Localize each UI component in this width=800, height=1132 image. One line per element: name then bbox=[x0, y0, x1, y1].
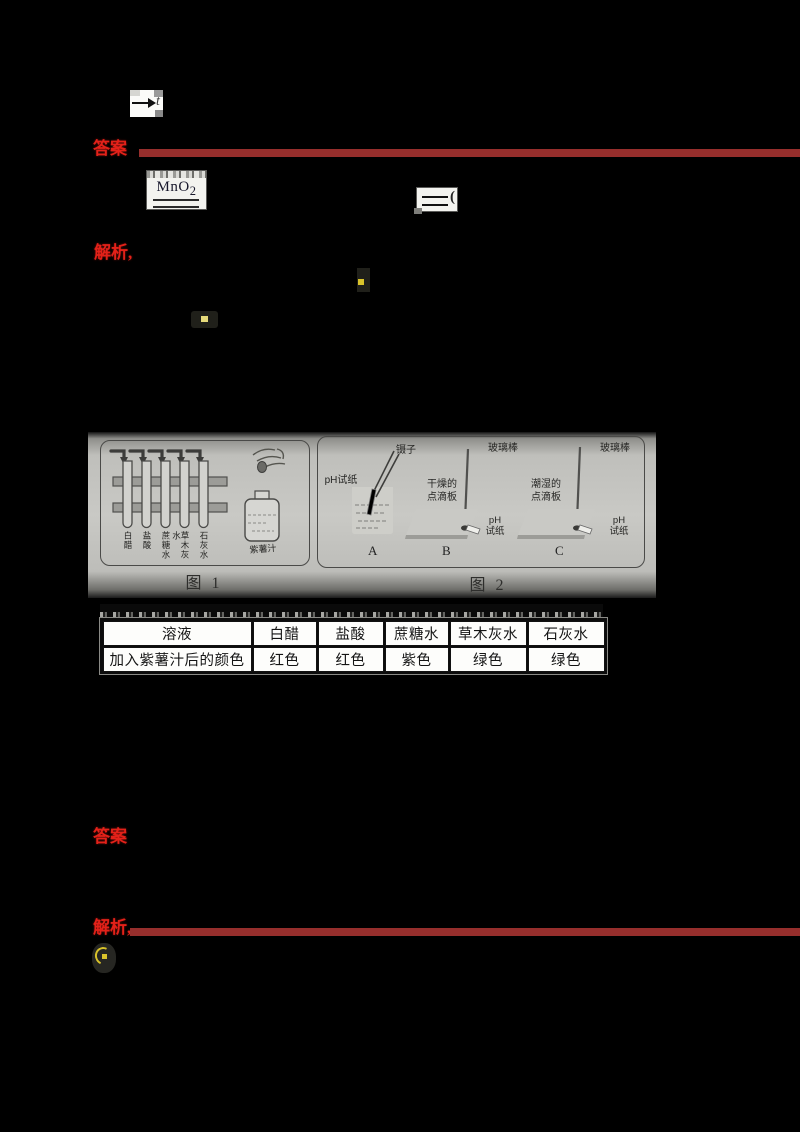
analysis-marker-1: 解析, bbox=[94, 243, 132, 263]
arrow-shaft-icon bbox=[132, 102, 149, 104]
glass-rod-label: 玻璃棒 bbox=[594, 443, 636, 455]
mno2-equation-fragment: MnO2 bbox=[147, 171, 206, 209]
tube-label: 盐酸 bbox=[139, 531, 151, 550]
setup-letter-c: C bbox=[555, 543, 564, 559]
scan-noise bbox=[147, 171, 206, 178]
tube-label: 蔗糖水 bbox=[158, 531, 170, 560]
fig2-line-art bbox=[318, 437, 644, 567]
figure1-caption: 图 1 bbox=[154, 569, 254, 593]
scan-noise bbox=[130, 90, 140, 96]
table-header: 蔗糖水 bbox=[385, 621, 449, 646]
garbled-text-strip bbox=[100, 604, 603, 618]
document-page: t 答案 MnO2 ( 解析, bbox=[0, 0, 800, 1132]
setup-letter-b: B bbox=[442, 543, 451, 559]
table-value: 紫色 bbox=[385, 647, 449, 672]
table-header: 石灰水 bbox=[528, 621, 605, 646]
equation-equals-line bbox=[153, 199, 199, 208]
figure1-panel: 白醋 盐酸 蔗糖水 草木灰水 石灰水 紫薯汁 bbox=[100, 440, 310, 566]
answer-marker-2: 答案 bbox=[93, 827, 127, 847]
scan-noise bbox=[414, 208, 422, 214]
artifact-spark-icon bbox=[92, 943, 116, 973]
wet-plate-label: 潮湿的 bbox=[522, 479, 570, 491]
table-header: 白醋 bbox=[253, 621, 317, 646]
figure2-panel: 镊子 pH试纸 玻璃棒 玻璃棒 干燥的 点滴板 潮湿的 点滴板 pH 试纸 pH… bbox=[317, 436, 645, 568]
table-value: 红色 bbox=[318, 647, 384, 672]
table-header: 溶液 bbox=[103, 621, 252, 646]
glass-rod-label: 玻璃棒 bbox=[482, 443, 524, 455]
axis-arrow-icon: t bbox=[130, 90, 163, 117]
answer-marker-1: 答案 bbox=[93, 139, 127, 159]
dry-plate-label: 点滴板 bbox=[418, 492, 466, 504]
tube-label: 石灰水 bbox=[196, 531, 208, 560]
equals-equation-fragment: ( bbox=[417, 188, 457, 211]
scan-noise bbox=[155, 110, 163, 117]
tube-label: 草木灰水 bbox=[177, 531, 189, 565]
dry-plate-label: 干燥的 bbox=[418, 479, 466, 491]
table-value: 绿色 bbox=[528, 647, 605, 672]
figure2-caption: 图 2 bbox=[433, 571, 543, 595]
tube-label: 白醋 bbox=[120, 531, 132, 550]
red-rule-1 bbox=[139, 149, 800, 157]
scan-noise bbox=[154, 90, 163, 97]
paren-mark: ( bbox=[450, 189, 455, 206]
ph-paper-label: pH试纸 bbox=[318, 475, 364, 487]
equation-equals-line bbox=[422, 196, 448, 206]
table-header: 草木灰水 bbox=[450, 621, 527, 646]
arrow-head-icon bbox=[148, 98, 156, 108]
tweezers-label: 镊子 bbox=[390, 445, 422, 457]
apparatus-figure: 白醋 盐酸 蔗糖水 草木灰水 石灰水 紫薯汁 图 1 bbox=[88, 432, 656, 598]
analysis-marker-2: 解析, bbox=[93, 918, 131, 938]
table-row-label: 加入紫薯汁后的颜色 bbox=[103, 647, 252, 672]
catalyst-formula: MnO2 bbox=[147, 179, 206, 199]
artifact-spark-icon bbox=[191, 311, 218, 328]
catalyst-sub: 2 bbox=[190, 184, 197, 198]
red-rule-2 bbox=[130, 928, 800, 936]
artifact-spark-icon bbox=[357, 268, 370, 292]
solution-color-table: 溶液 白醋 盐酸 蔗糖水 草木灰水 石灰水 加入紫薯汁后的颜色 红色 红色 紫色… bbox=[100, 618, 607, 674]
catalyst-main: MnO bbox=[157, 179, 190, 195]
ph-paper-label: 试纸 bbox=[478, 527, 512, 538]
wet-plate-label: 点滴板 bbox=[522, 492, 570, 504]
table-value: 绿色 bbox=[450, 647, 527, 672]
setup-letter-a: A bbox=[368, 543, 377, 559]
table-value: 红色 bbox=[253, 647, 317, 672]
ph-paper-label: 试纸 bbox=[602, 527, 636, 538]
table-header: 盐酸 bbox=[318, 621, 384, 646]
